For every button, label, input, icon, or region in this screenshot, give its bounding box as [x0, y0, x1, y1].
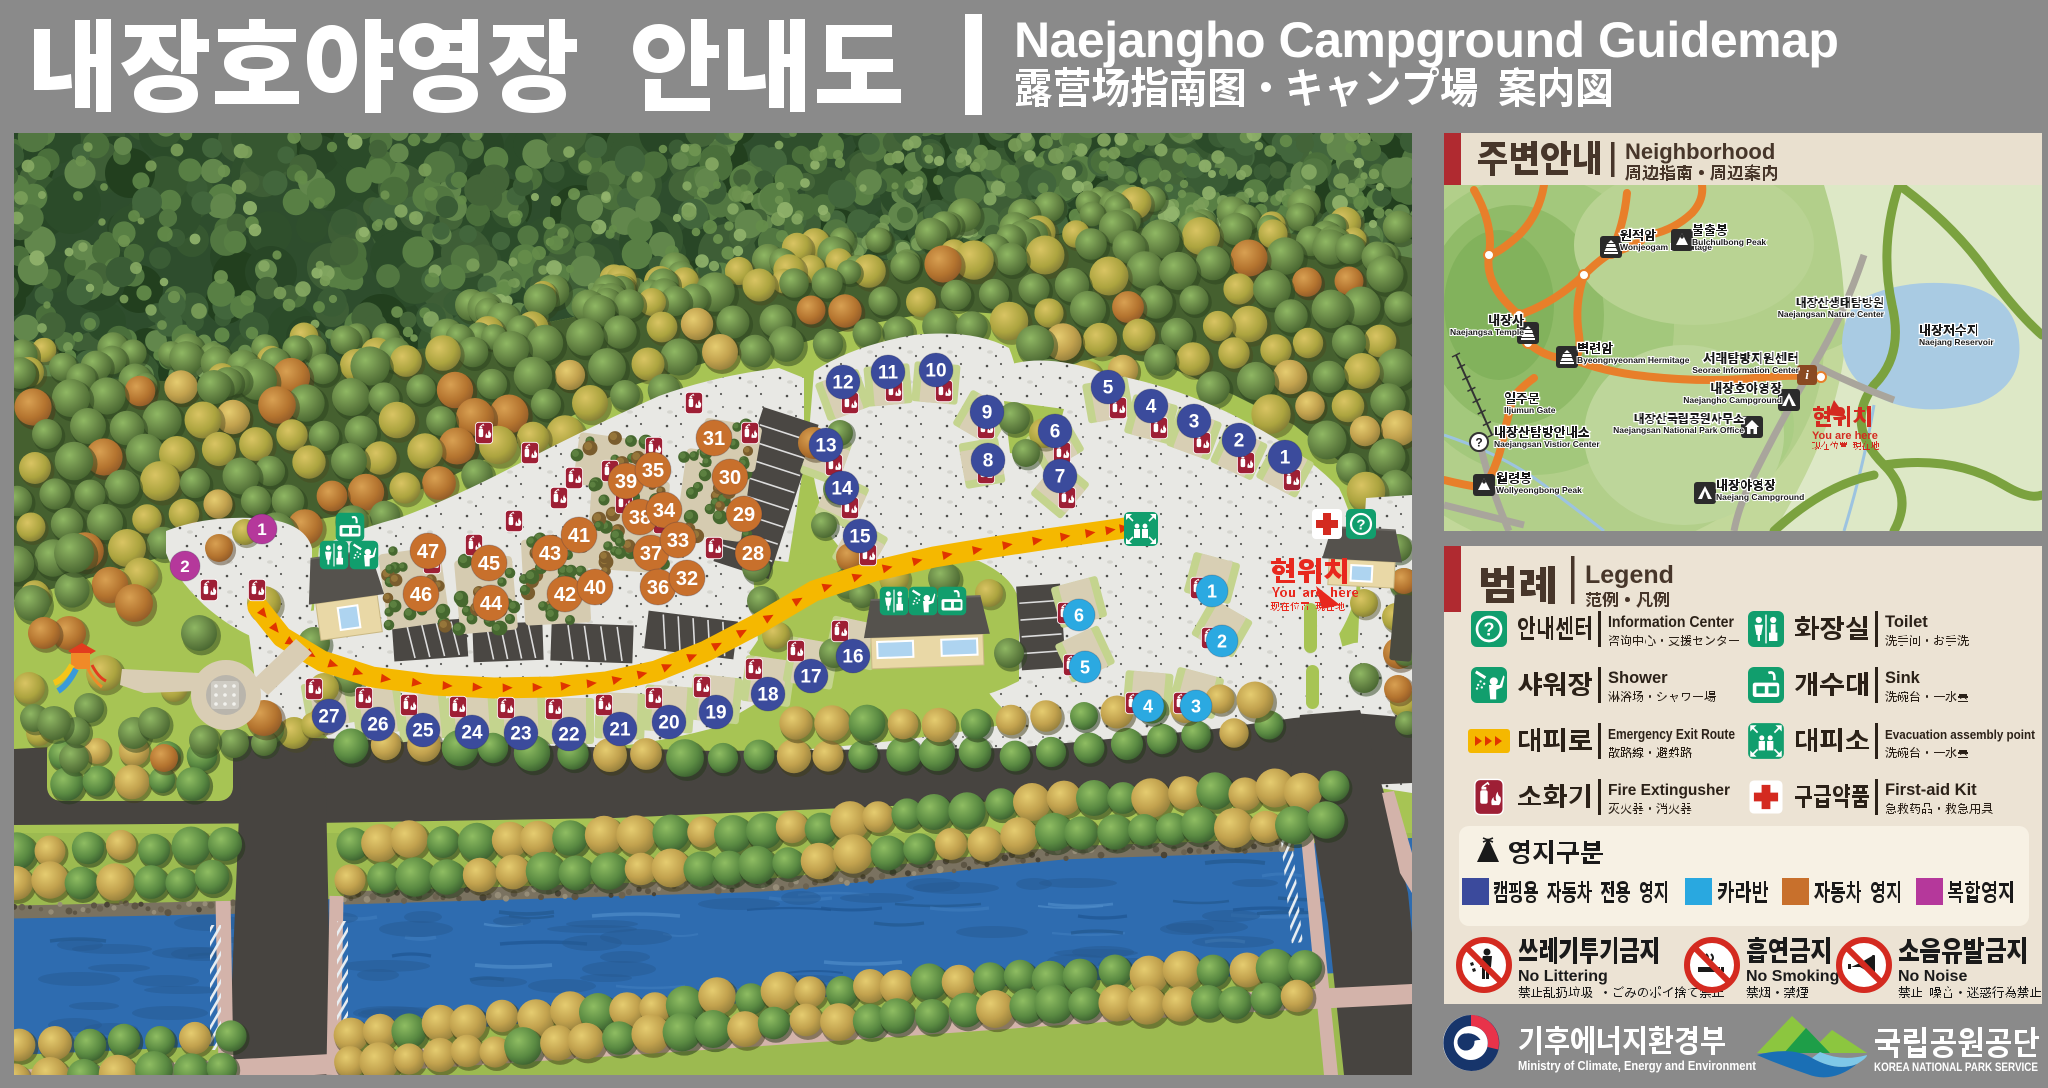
svg-text:Fire Extingusher: Fire Extingusher — [1608, 782, 1730, 799]
svg-text:Evacuation assembly point: Evacuation assembly point — [1885, 728, 2036, 742]
svg-text:Ministry of Climate, Energy an: Ministry of Climate, Energy and Environm… — [1518, 1059, 1757, 1073]
svg-text:Shower: Shower — [1608, 669, 1668, 687]
svg-text:Neighborhood: Neighborhood — [1625, 139, 1775, 164]
svg-text:No Littering: No Littering — [1518, 968, 1608, 985]
svg-text:Emergency Exit Route: Emergency Exit Route — [1608, 726, 1735, 743]
svg-text:No Noise: No Noise — [1898, 968, 1967, 985]
svg-text:First-aid Kit: First-aid Kit — [1885, 781, 1977, 799]
svg-text:Toilet: Toilet — [1885, 613, 1928, 631]
svg-text:Legend: Legend — [1585, 561, 1674, 589]
svg-text:Sink: Sink — [1885, 669, 1921, 687]
svg-text:No Smoking: No Smoking — [1746, 968, 1839, 985]
svg-text:KOREA NATIONAL PARK SERVICE: KOREA NATIONAL PARK SERVICE — [1874, 1060, 2038, 1074]
svg-text:Information Center: Information Center — [1608, 614, 1734, 631]
